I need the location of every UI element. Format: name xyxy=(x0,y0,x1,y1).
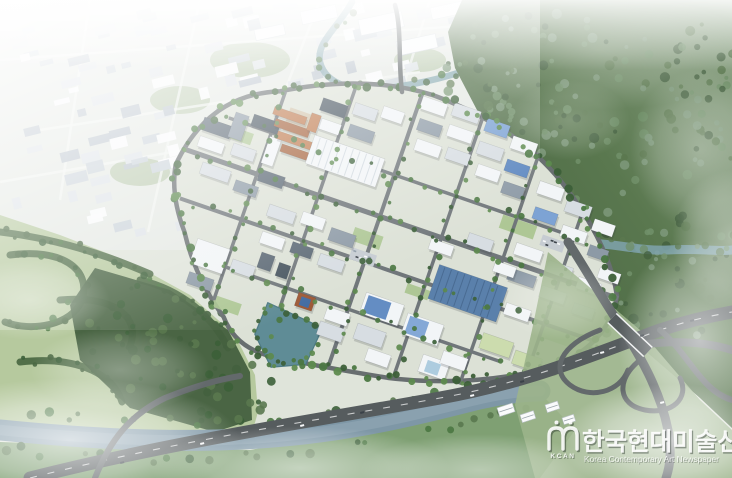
forest-tree xyxy=(660,229,668,237)
woods-tree xyxy=(232,365,241,374)
river-bank-tree xyxy=(626,242,635,251)
woods-tree xyxy=(227,340,236,349)
forest-tree xyxy=(620,160,630,170)
watermark-english-subtitle: Korea Contemporary Art Newspaper xyxy=(584,454,719,464)
forest-tree xyxy=(645,229,651,235)
woods-tree xyxy=(203,388,211,396)
aerial-masterplan-rendering: KCAN KCAN 한국현대미술신문 한국현대미술신문 Korea Contem… xyxy=(0,0,732,478)
woods-tree xyxy=(267,377,276,386)
watermark-korean-title: 한국현대미술신문 xyxy=(582,428,732,456)
woods-tree xyxy=(260,401,268,409)
hedgerow-tree xyxy=(21,356,25,360)
fog-cloud xyxy=(500,260,620,340)
woods-tree xyxy=(224,382,234,392)
riverside-tree xyxy=(234,415,242,423)
woods-tree xyxy=(248,361,256,369)
fog-cloud xyxy=(510,80,630,160)
riverside-tree xyxy=(458,422,464,428)
woods-tree xyxy=(213,366,218,371)
woods-tree xyxy=(212,350,222,360)
forest-tree xyxy=(621,154,628,161)
forest-tree xyxy=(627,271,632,276)
forest-tree xyxy=(603,208,612,217)
riverside-tree xyxy=(447,426,454,433)
kcan-logo-text: KCAN xyxy=(550,453,575,460)
woods-tree xyxy=(246,399,254,407)
riverside-tree xyxy=(470,415,477,422)
forest-tree xyxy=(620,190,627,197)
landscape-layers xyxy=(0,0,732,478)
rendering-canvas: KCAN KCAN 한국현대미술신문 한국현대미술신문 Korea Contem… xyxy=(0,0,732,478)
forest-tree xyxy=(620,237,626,243)
woods-tree xyxy=(213,392,222,401)
river-bank-tree xyxy=(644,251,652,259)
riverside-tree xyxy=(425,426,431,432)
riverside-tree xyxy=(487,412,493,418)
woods-tree xyxy=(215,340,221,346)
